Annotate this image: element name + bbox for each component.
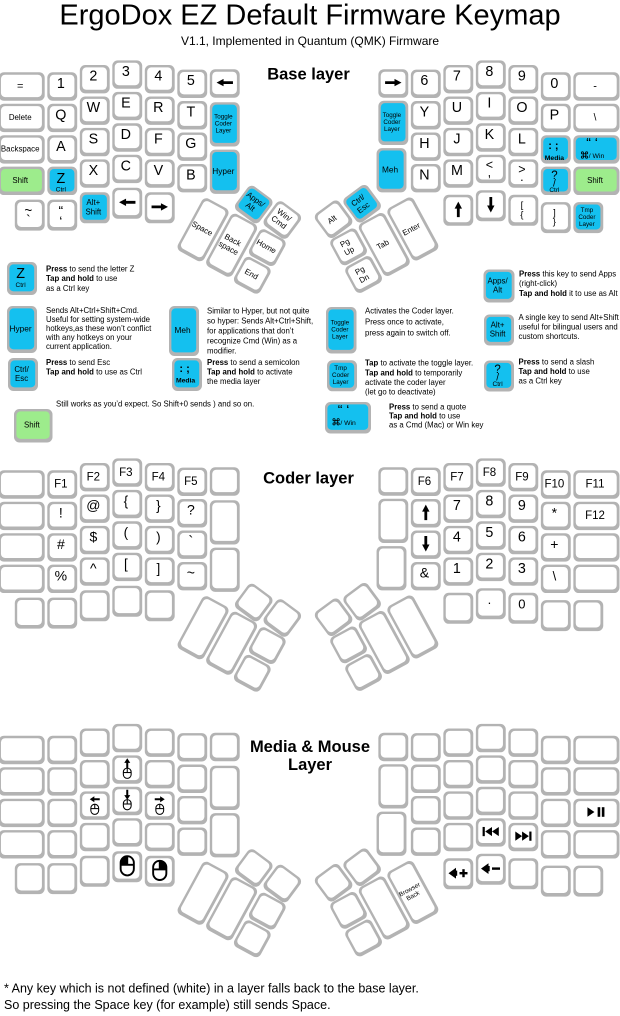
svg-text:D: D bbox=[121, 127, 131, 143]
svg-text:Backspace: Backspace bbox=[1, 144, 40, 153]
svg-text:Q: Q bbox=[55, 107, 66, 123]
svg-text:Toggle: Toggle bbox=[214, 114, 233, 121]
svg-text:the media layer: the media layer bbox=[207, 377, 261, 386]
svg-text:Hyper: Hyper bbox=[212, 166, 234, 176]
svg-text:Press to send a semicolon: Press to send a semicolon bbox=[207, 358, 300, 367]
svg-text:1: 1 bbox=[57, 76, 65, 92]
svg-text:F12: F12 bbox=[585, 510, 605, 522]
svg-text:activate the coder layer: activate the coder layer bbox=[365, 378, 446, 387]
svg-text:Shift: Shift bbox=[85, 207, 102, 216]
svg-text:8: 8 bbox=[485, 64, 493, 80]
svg-text:Coder: Coder bbox=[383, 119, 400, 126]
svg-text:Esc: Esc bbox=[15, 374, 28, 383]
svg-text:/ Win: / Win bbox=[589, 153, 605, 160]
svg-text:So pressing the Space key (for: So pressing the Space key (for example) … bbox=[4, 998, 331, 1012]
svg-text:Shift: Shift bbox=[490, 329, 507, 338]
svg-text:V1.1, Implemented in Quantum (: V1.1, Implemented in Quantum (QMK) Firmw… bbox=[181, 34, 439, 48]
svg-text:-: - bbox=[593, 81, 597, 93]
svg-text:F9: F9 bbox=[515, 471, 528, 483]
svg-text:/ Win: / Win bbox=[340, 420, 356, 427]
svg-text:\: \ bbox=[553, 568, 557, 583]
svg-text:(: ( bbox=[124, 525, 129, 540]
svg-text:* Any key which is not defined: * Any key which is not defined (white) i… bbox=[4, 982, 419, 996]
svg-text:useful for bilingual users and: useful for bilingual users and bbox=[519, 322, 618, 331]
svg-text:4: 4 bbox=[453, 530, 461, 546]
svg-text:7: 7 bbox=[453, 498, 461, 514]
svg-text:3: 3 bbox=[518, 561, 526, 577]
svg-text:$: $ bbox=[89, 529, 97, 545]
svg-text:Ctrl: Ctrl bbox=[493, 381, 504, 388]
svg-text:Ctrl: Ctrl bbox=[549, 187, 560, 194]
svg-text:Shift: Shift bbox=[587, 176, 604, 185]
svg-text:Alt: Alt bbox=[493, 285, 503, 294]
svg-text:Tap and hold it to use as Alt: Tap and hold it to use as Alt bbox=[519, 289, 618, 298]
svg-text:(let go to deactivate): (let go to deactivate) bbox=[365, 387, 436, 396]
svg-text:custom shortcuts.: custom shortcuts. bbox=[519, 332, 580, 341]
svg-text:recognize Cmd (Win) as a: recognize Cmd (Win) as a bbox=[207, 337, 298, 346]
svg-text:Press to send Esc: Press to send Esc bbox=[46, 358, 110, 367]
svg-text:F3: F3 bbox=[119, 467, 132, 479]
svg-text:.: . bbox=[488, 592, 492, 607]
svg-text:current application.: current application. bbox=[46, 342, 112, 351]
svg-text:modifier.: modifier. bbox=[207, 346, 236, 355]
svg-text:6: 6 bbox=[420, 73, 428, 89]
svg-text:): ) bbox=[156, 530, 161, 545]
svg-text:Useful for setting system-wide: Useful for setting system-wide bbox=[46, 315, 150, 324]
svg-text:3: 3 bbox=[122, 64, 130, 80]
svg-text:Media & Mouse: Media & Mouse bbox=[250, 738, 370, 756]
svg-text:F8: F8 bbox=[483, 467, 496, 479]
svg-text:: ;: : ; bbox=[179, 363, 189, 375]
svg-text:Toggle: Toggle bbox=[331, 320, 350, 327]
svg-text:J: J bbox=[453, 132, 460, 148]
svg-text:I: I bbox=[487, 95, 491, 111]
svg-text:T: T bbox=[186, 105, 195, 121]
svg-text:=: = bbox=[17, 81, 23, 93]
svg-text:1: 1 bbox=[453, 561, 461, 577]
svg-text:@: @ bbox=[86, 497, 100, 513]
svg-text:#: # bbox=[57, 536, 65, 552]
svg-text:}: } bbox=[156, 498, 161, 513]
svg-text:`: ` bbox=[26, 213, 31, 228]
svg-text:hotkeys,as these won’t conflic: hotkeys,as these won’t conflict bbox=[46, 324, 152, 333]
svg-text:!: ! bbox=[59, 504, 63, 520]
svg-text:\: \ bbox=[594, 113, 597, 124]
svg-text:Media: Media bbox=[545, 155, 564, 162]
svg-text:M: M bbox=[451, 163, 463, 179]
svg-text:“ ‘: “ ‘ bbox=[338, 402, 350, 418]
svg-text:Ctrl: Ctrl bbox=[16, 282, 27, 289]
svg-text:Tap and hold to activate: Tap and hold to activate bbox=[207, 368, 293, 377]
svg-text:Shift: Shift bbox=[12, 176, 29, 185]
svg-text:Layer: Layer bbox=[288, 756, 333, 774]
svg-text:F4: F4 bbox=[152, 471, 166, 483]
svg-text:Tap and hold to temporarily: Tap and hold to temporarily bbox=[365, 368, 462, 377]
svg-text:Meh: Meh bbox=[175, 325, 192, 335]
svg-text:,: , bbox=[488, 165, 491, 179]
svg-text:7: 7 bbox=[453, 69, 461, 85]
svg-text:Delete: Delete bbox=[9, 113, 32, 122]
svg-text:2: 2 bbox=[89, 69, 97, 85]
svg-text:Coder: Coder bbox=[331, 327, 348, 334]
svg-text:^: ^ bbox=[90, 560, 97, 576]
svg-text:Coder layer: Coder layer bbox=[263, 470, 354, 488]
svg-text:so hyper: Sends Alt+Ctrl+Shift: so hyper: Sends Alt+Ctrl+Shift, bbox=[207, 317, 313, 326]
svg-text:Layer: Layer bbox=[332, 334, 348, 341]
svg-text:Press this key to send Apps: Press this key to send Apps bbox=[519, 270, 616, 279]
svg-text:{: { bbox=[520, 209, 523, 220]
svg-text:A single key to send Alt+Shift: A single key to send Alt+Shift bbox=[519, 313, 620, 322]
svg-text:A: A bbox=[56, 139, 66, 155]
svg-text:F7: F7 bbox=[450, 471, 463, 483]
svg-text:Sends Alt+Ctrl+Shift+Cmd.: Sends Alt+Ctrl+Shift+Cmd. bbox=[46, 306, 139, 315]
svg-text:4: 4 bbox=[154, 69, 162, 85]
svg-text:B: B bbox=[186, 168, 196, 184]
svg-text:Ctrl: Ctrl bbox=[56, 186, 67, 193]
svg-text:Alt+: Alt+ bbox=[491, 320, 505, 329]
svg-text:Coder: Coder bbox=[332, 372, 349, 379]
svg-text:Y: Y bbox=[420, 105, 430, 121]
svg-text:Apps/: Apps/ bbox=[488, 276, 509, 285]
svg-text:ErgoDox EZ Default Firmware Ke: ErgoDox EZ Default Firmware Keymap bbox=[59, 0, 560, 32]
svg-text:5: 5 bbox=[187, 73, 195, 89]
svg-text:O: O bbox=[516, 100, 527, 116]
svg-text:8: 8 bbox=[485, 493, 493, 509]
svg-text:C: C bbox=[121, 158, 131, 174]
svg-text:Media: Media bbox=[176, 378, 195, 385]
svg-text:G: G bbox=[185, 136, 196, 152]
svg-text:L: L bbox=[518, 132, 526, 148]
svg-text:(right-click): (right-click) bbox=[519, 279, 558, 288]
svg-text:Hyper: Hyper bbox=[10, 324, 32, 334]
svg-text:9: 9 bbox=[518, 69, 526, 85]
svg-text:0: 0 bbox=[518, 596, 525, 611]
svg-text:Press once to activate,: Press once to activate, bbox=[365, 318, 444, 327]
svg-text:{: { bbox=[124, 493, 129, 508]
svg-text:&: & bbox=[420, 565, 430, 581]
svg-text:Coder: Coder bbox=[578, 214, 595, 221]
svg-text:V: V bbox=[154, 163, 164, 179]
svg-text:F2: F2 bbox=[87, 471, 100, 483]
svg-text:with any hotkeys on your: with any hotkeys on your bbox=[45, 333, 132, 342]
svg-text:X: X bbox=[89, 163, 99, 179]
svg-text:Layer: Layer bbox=[333, 379, 349, 386]
svg-text:?: ? bbox=[187, 502, 195, 518]
svg-text:K: K bbox=[485, 127, 495, 143]
svg-text:[: [ bbox=[124, 556, 128, 571]
svg-text:Tap and hold to use: Tap and hold to use bbox=[389, 412, 460, 421]
svg-text:Layer: Layer bbox=[215, 128, 231, 135]
svg-text:~: ~ bbox=[187, 565, 195, 581]
svg-text:}: } bbox=[553, 217, 556, 228]
svg-text:F11: F11 bbox=[586, 479, 605, 491]
svg-text:W: W bbox=[87, 100, 101, 116]
svg-text:Layer: Layer bbox=[384, 126, 400, 133]
svg-text:S: S bbox=[89, 132, 99, 148]
svg-text:Press to send the letter Z: Press to send the letter Z bbox=[46, 264, 135, 273]
svg-text:: ;: : ; bbox=[548, 140, 558, 152]
svg-text:Shift: Shift bbox=[24, 421, 41, 430]
svg-text:9: 9 bbox=[518, 498, 526, 514]
svg-text:Tap and hold to use: Tap and hold to use bbox=[519, 367, 590, 376]
svg-text:.: . bbox=[520, 170, 523, 184]
svg-text:]: ] bbox=[156, 561, 160, 576]
svg-text:as a Ctrl key: as a Ctrl key bbox=[519, 376, 562, 385]
svg-text:5: 5 bbox=[485, 525, 493, 541]
svg-text:0: 0 bbox=[550, 76, 558, 92]
svg-text:Tap and hold to use: Tap and hold to use bbox=[46, 274, 117, 283]
svg-text:Tap to activate the toggle lay: Tap to activate the toggle layer. bbox=[365, 359, 473, 368]
svg-text:Ctrl/: Ctrl/ bbox=[14, 365, 29, 374]
svg-text:Alt+: Alt+ bbox=[86, 198, 100, 207]
svg-text:%: % bbox=[55, 567, 67, 583]
svg-text:+: + bbox=[550, 536, 558, 552]
svg-text:Layer: Layer bbox=[579, 221, 595, 228]
svg-text:F6: F6 bbox=[418, 476, 431, 488]
svg-text:N: N bbox=[419, 168, 429, 184]
svg-text:Base layer: Base layer bbox=[267, 66, 350, 84]
svg-text:R: R bbox=[153, 100, 163, 116]
svg-text:2: 2 bbox=[485, 556, 493, 572]
svg-text:as a Ctrl key: as a Ctrl key bbox=[46, 284, 89, 293]
svg-text:‘: ‘ bbox=[59, 213, 62, 229]
svg-text:Still works as you’d expect. S: Still works as you’d expect. So Shift+0 … bbox=[56, 400, 254, 409]
svg-text:Press to send a quote: Press to send a quote bbox=[389, 403, 466, 412]
svg-text:Coder: Coder bbox=[215, 121, 232, 128]
svg-text:E: E bbox=[121, 95, 131, 111]
svg-text:F: F bbox=[154, 132, 163, 148]
svg-text:Tmp: Tmp bbox=[334, 365, 347, 372]
svg-text:Similar to Hyper, but not quit: Similar to Hyper, but not quite bbox=[207, 307, 309, 316]
svg-text:for applications that don’t: for applications that don’t bbox=[207, 327, 295, 336]
svg-text:F1: F1 bbox=[54, 479, 67, 491]
svg-text:H: H bbox=[419, 136, 429, 152]
svg-text:Z: Z bbox=[56, 171, 65, 187]
svg-text:6: 6 bbox=[518, 530, 526, 546]
svg-text:P: P bbox=[550, 107, 560, 123]
svg-text:press again to switch off.: press again to switch off. bbox=[365, 329, 451, 338]
svg-text:F10: F10 bbox=[544, 479, 564, 491]
svg-text:Z: Z bbox=[16, 266, 25, 282]
svg-text:Meh: Meh bbox=[382, 164, 399, 174]
svg-text:“ ‘: “ ‘ bbox=[586, 135, 598, 151]
svg-text:U: U bbox=[452, 100, 462, 116]
svg-text:`: ` bbox=[188, 533, 193, 550]
svg-text:Tap and hold to use as Ctrl: Tap and hold to use as Ctrl bbox=[46, 368, 142, 377]
svg-text:Tmp: Tmp bbox=[581, 207, 594, 214]
svg-text:*: * bbox=[552, 504, 558, 520]
svg-text:Activates the Coder layer.: Activates the Coder layer. bbox=[365, 306, 454, 315]
svg-text:Press to send a slash: Press to send a slash bbox=[519, 357, 595, 366]
svg-text:as a Cmd (Mac) or Win key: as a Cmd (Mac) or Win key bbox=[389, 421, 484, 430]
svg-text:Toggle: Toggle bbox=[383, 112, 402, 119]
svg-text:F5: F5 bbox=[184, 476, 197, 488]
